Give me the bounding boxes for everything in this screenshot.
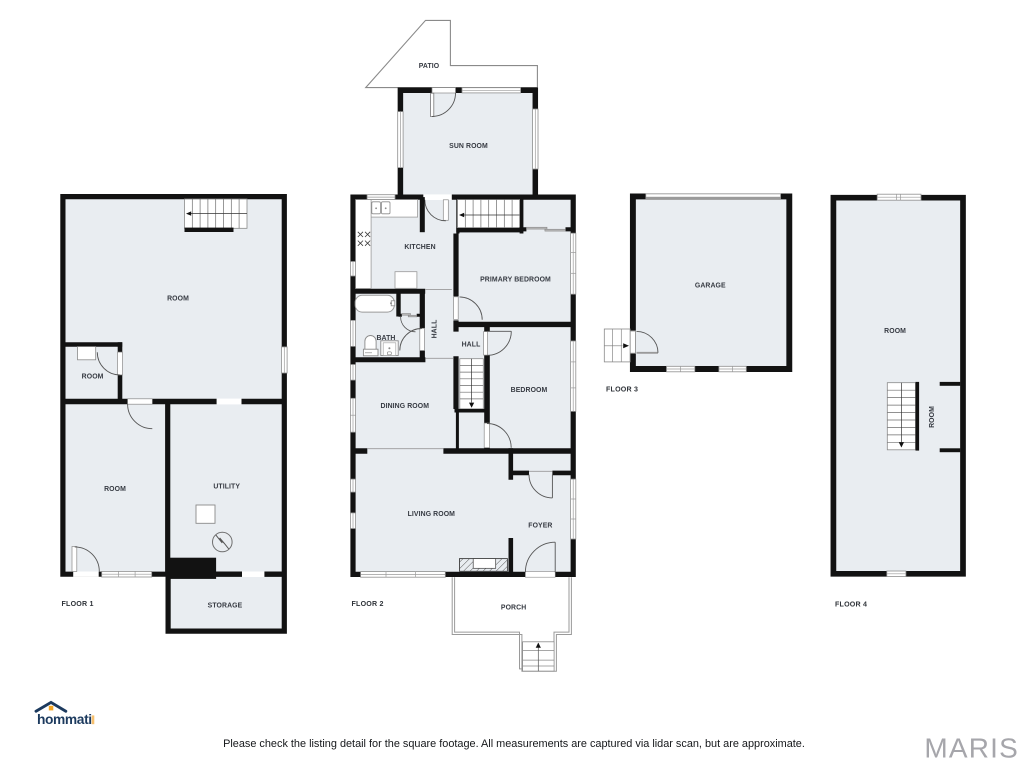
svg-text:BEDROOM: BEDROOM bbox=[511, 387, 548, 394]
svg-text:Please check the listing detai: Please check the listing detail for the … bbox=[223, 738, 805, 750]
svg-text:PATIO: PATIO bbox=[419, 63, 440, 70]
svg-text:SUN ROOM: SUN ROOM bbox=[449, 143, 488, 150]
svg-text:PORCH: PORCH bbox=[501, 604, 526, 611]
svg-text:ROOM: ROOM bbox=[929, 406, 936, 428]
svg-text:HALL: HALL bbox=[462, 342, 481, 349]
svg-text:ROOM: ROOM bbox=[82, 374, 104, 381]
svg-text:STORAGE: STORAGE bbox=[208, 603, 243, 610]
svg-text:GARAGE: GARAGE bbox=[695, 282, 726, 289]
svg-text:ROOM: ROOM bbox=[884, 328, 906, 335]
svg-text:BATH: BATH bbox=[376, 335, 395, 342]
svg-text:FLOOR 4: FLOOR 4 bbox=[835, 601, 867, 609]
svg-text:LIVING ROOM: LIVING ROOM bbox=[408, 511, 456, 518]
svg-text:FLOOR 3: FLOOR 3 bbox=[606, 386, 638, 394]
svg-text:ROOM: ROOM bbox=[167, 296, 189, 303]
svg-text:UTILITY: UTILITY bbox=[213, 483, 240, 490]
svg-text:FLOOR 1: FLOOR 1 bbox=[62, 600, 94, 608]
svg-text:MARIS: MARIS bbox=[924, 733, 1019, 764]
svg-text:ROOM: ROOM bbox=[104, 486, 126, 493]
svg-text:HALL: HALL bbox=[432, 320, 439, 339]
svg-text:hommati: hommati bbox=[37, 712, 92, 727]
svg-text:DINING ROOM: DINING ROOM bbox=[381, 403, 430, 410]
svg-text:FOYER: FOYER bbox=[528, 522, 552, 529]
svg-text:KITCHEN: KITCHEN bbox=[404, 244, 435, 251]
svg-text:FLOOR 2: FLOOR 2 bbox=[352, 600, 384, 608]
svg-text:PRIMARY BEDROOM: PRIMARY BEDROOM bbox=[480, 276, 551, 283]
